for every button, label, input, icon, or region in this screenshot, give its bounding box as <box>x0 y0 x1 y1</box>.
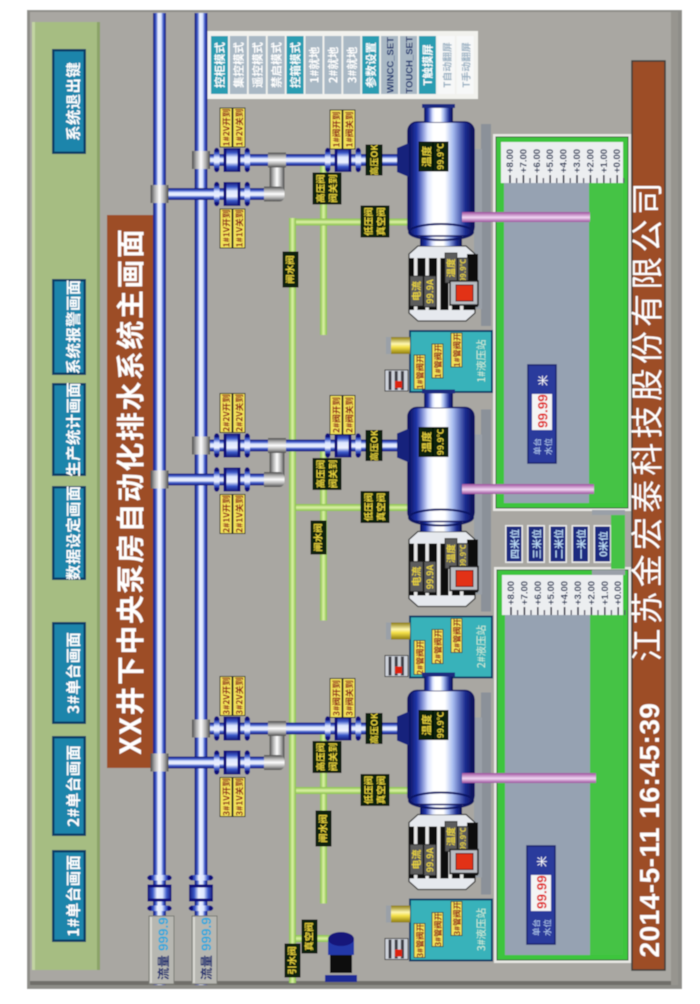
svg-text:+3.00: +3.00 <box>572 149 583 173</box>
svg-text:+2.00: +2.00 <box>586 581 597 605</box>
svg-text:999.9: 999.9 <box>199 917 214 951</box>
svg-text:+8.00: +8.00 <box>506 581 517 605</box>
svg-text:+0.00: +0.00 <box>612 149 623 173</box>
svg-text:TOUCH_SET: TOUCH_SET <box>405 36 416 94</box>
svg-text:+4.00: +4.00 <box>559 149 570 173</box>
svg-text:99.99: 99.99 <box>535 875 550 909</box>
svg-text:+1.00: +1.00 <box>600 581 611 605</box>
svg-text:999.9: 999.9 <box>156 917 171 951</box>
svg-text:+5.00: +5.00 <box>545 149 556 173</box>
svg-text:+1.00: +1.00 <box>599 149 610 173</box>
svg-text:+4.00: +4.00 <box>560 581 571 605</box>
svg-text:+6.00: +6.00 <box>533 581 544 605</box>
svg-text:+3.00: +3.00 <box>573 581 584 605</box>
svg-text:+0.00: +0.00 <box>613 581 624 605</box>
svg-text:99.99: 99.99 <box>536 394 551 428</box>
svg-text:+6.00: +6.00 <box>532 149 543 173</box>
svg-text:+2.00: +2.00 <box>585 149 596 173</box>
svg-text:+7.00: +7.00 <box>518 149 529 173</box>
svg-text:WINCC_SET: WINCC_SET <box>386 37 397 93</box>
svg-text:+5.00: +5.00 <box>546 581 557 605</box>
svg-text:+8.00: +8.00 <box>505 149 516 173</box>
svg-text:+7.00: +7.00 <box>519 581 530 605</box>
svg-text:2014-5-11 16:45:39: 2014-5-11 16:45:39 <box>634 703 665 958</box>
